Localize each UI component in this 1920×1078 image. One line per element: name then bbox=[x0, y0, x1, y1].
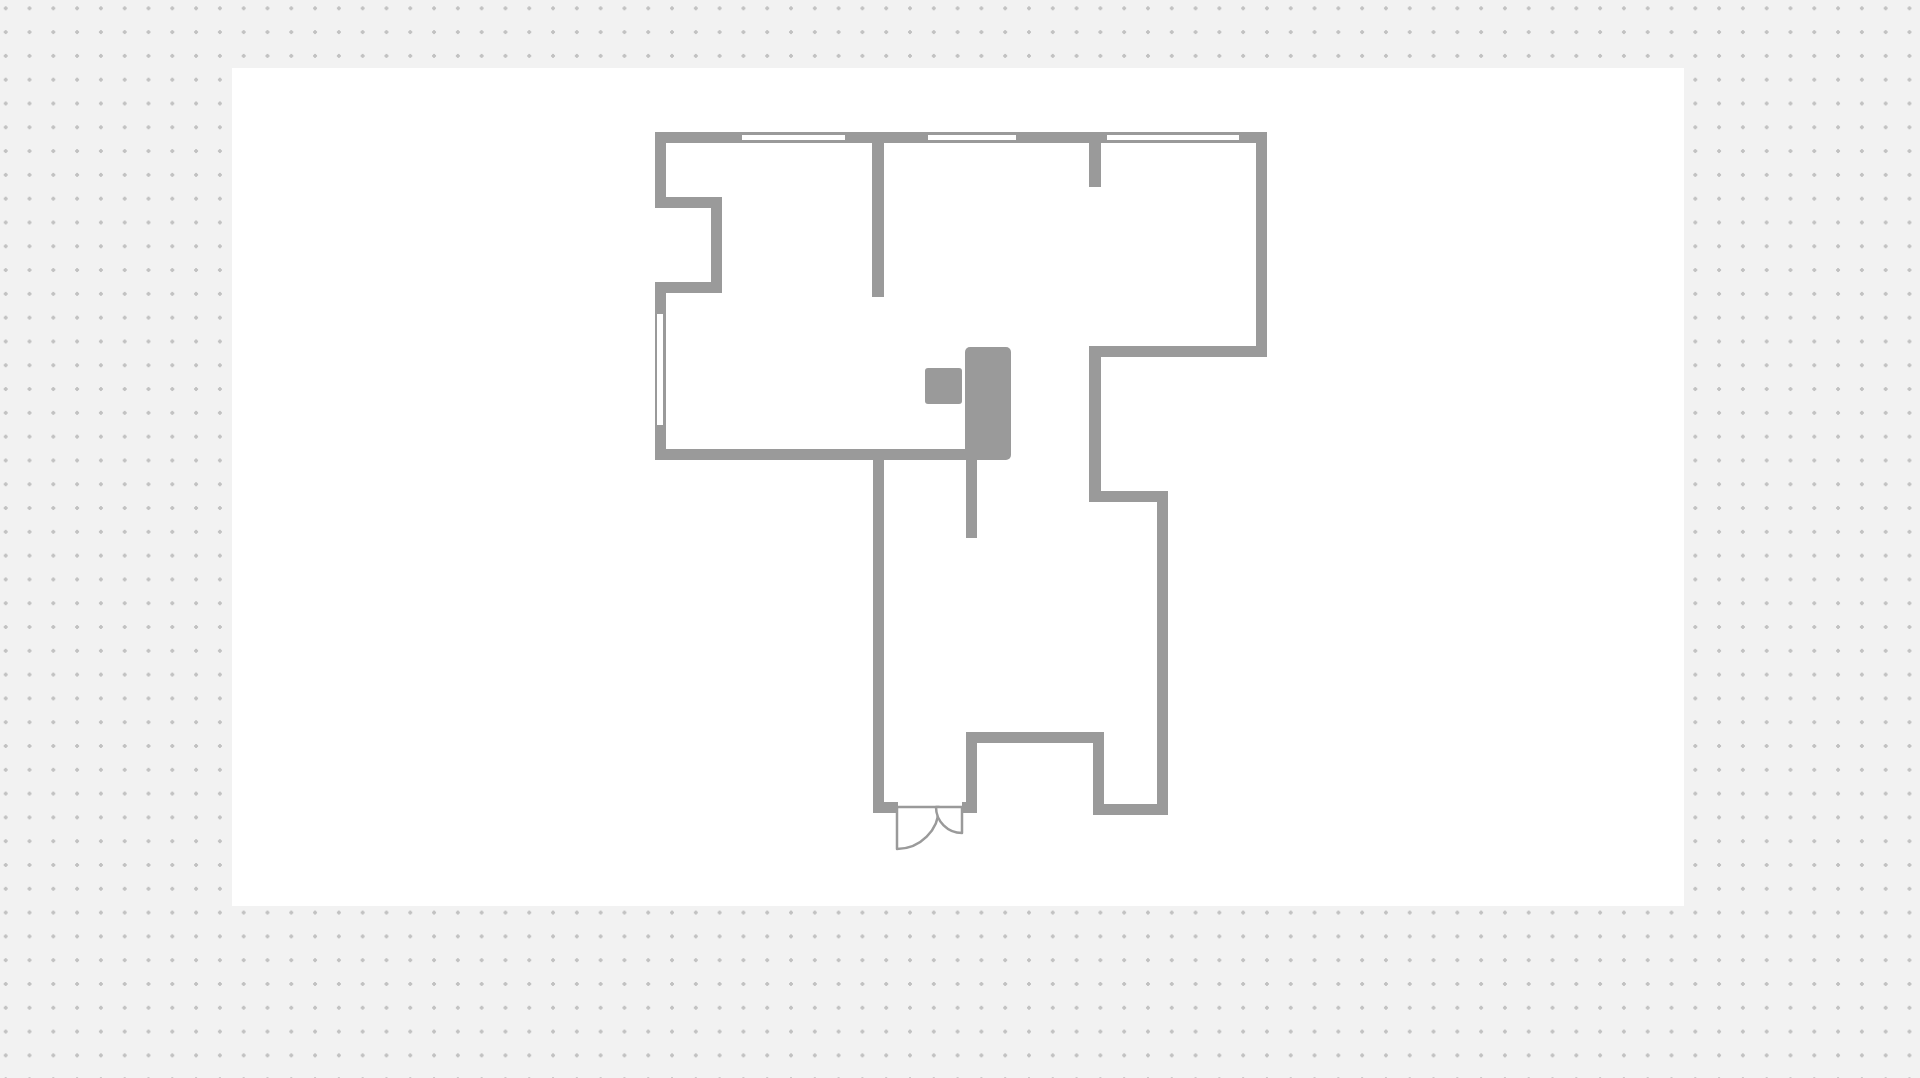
floorplan-svg bbox=[0, 0, 1920, 1078]
wall-mid-right-step[interactable] bbox=[1089, 491, 1168, 502]
wall-entry-notch-top[interactable] bbox=[966, 732, 1104, 743]
cabinet-large[interactable] bbox=[965, 347, 1011, 460]
cabinet-small[interactable] bbox=[925, 368, 962, 404]
wall-left-exterior-upper[interactable] bbox=[655, 132, 666, 208]
wall-mid-right-vertical[interactable] bbox=[1089, 346, 1101, 502]
wall-partition-top-stub[interactable] bbox=[1089, 143, 1101, 187]
wall-entry-notch-right[interactable] bbox=[1093, 742, 1104, 815]
window-top-window-3[interactable] bbox=[1107, 135, 1239, 140]
wall-lower-right-exterior[interactable] bbox=[1157, 491, 1168, 815]
window-top-window-1[interactable] bbox=[742, 135, 845, 140]
wall-right-exterior[interactable] bbox=[1256, 132, 1267, 357]
window-left-window[interactable] bbox=[657, 314, 663, 425]
wall-partition-top-center[interactable] bbox=[872, 143, 884, 297]
wall-lower-left-exterior[interactable] bbox=[873, 449, 884, 813]
wall-upper-room-bottom[interactable] bbox=[655, 449, 972, 460]
wall-upper-right-room-bottom[interactable] bbox=[1089, 346, 1267, 357]
wall-partition-center-stub[interactable] bbox=[966, 459, 977, 538]
door-leaf-left[interactable] bbox=[897, 807, 939, 849]
wall-bottom-right-exterior[interactable] bbox=[1093, 804, 1168, 815]
wall-left-niche-right[interactable] bbox=[711, 197, 722, 293]
dotted-grid-workspace bbox=[0, 0, 1920, 1078]
wall-entry-notch-left[interactable] bbox=[966, 732, 977, 807]
door-leaf-right[interactable] bbox=[936, 807, 962, 833]
window-top-window-2[interactable] bbox=[928, 135, 1016, 140]
wall-door-right-jamb[interactable] bbox=[962, 802, 977, 813]
